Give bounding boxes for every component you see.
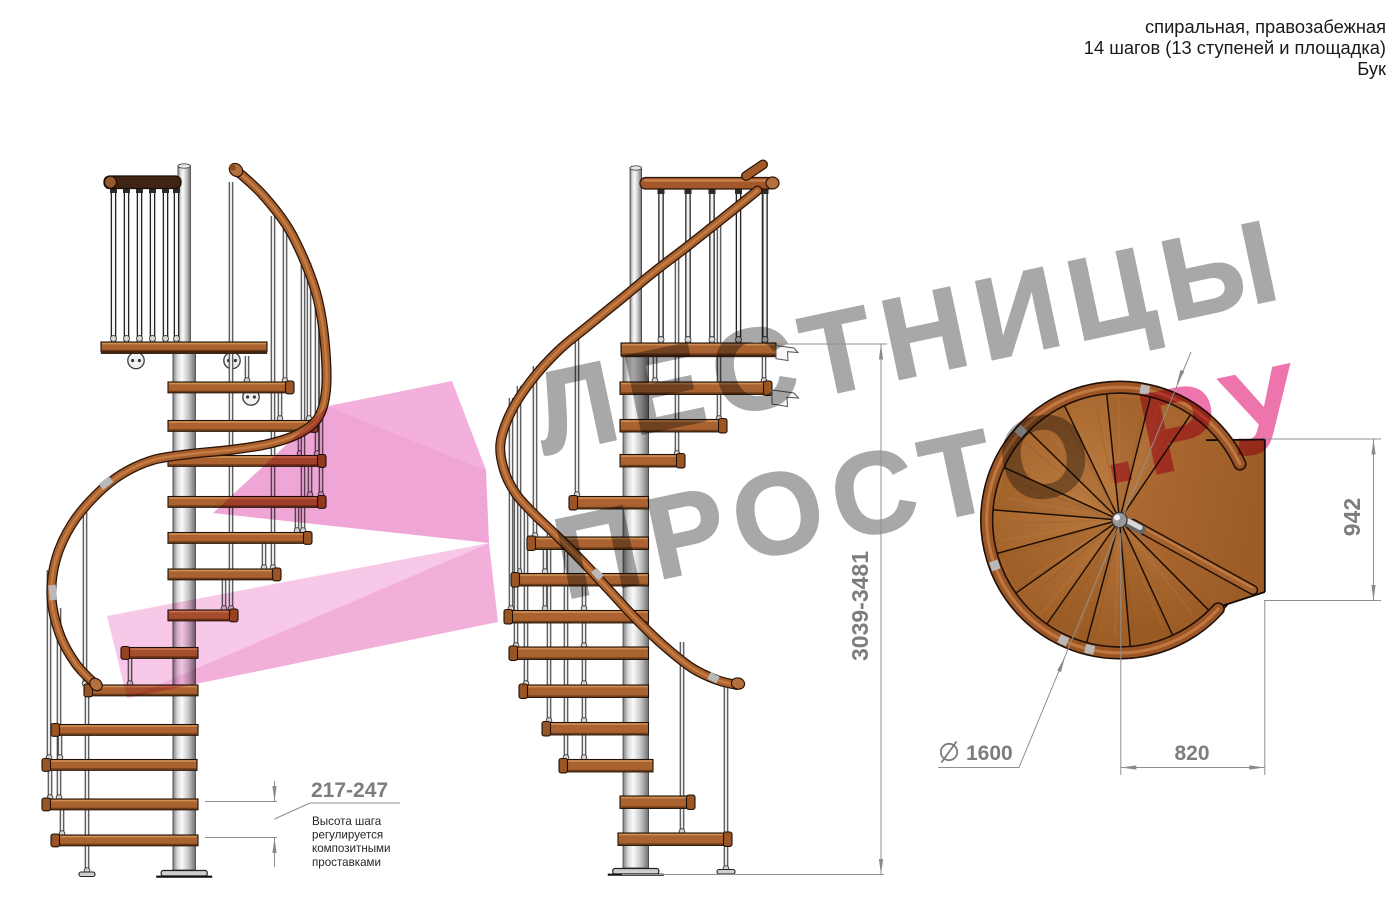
svg-text:3039-3481: 3039-3481 [847,551,873,661]
svg-text:217-247: 217-247 [311,779,388,802]
svg-text:спиральная, правозабежная: спиральная, правозабежная [1145,16,1386,37]
svg-text:1600: 1600 [966,742,1013,765]
svg-text:Бук: Бук [1357,58,1387,79]
svg-text:Высота шагарегулируетсякомпози: Высота шагарегулируетсякомпозитнымипрост… [312,815,391,869]
svg-text:14 шагов (13 ступеней и площад: 14 шагов (13 ступеней и площадка) [1084,37,1386,58]
svg-text:942: 942 [1339,498,1365,536]
svg-text:820: 820 [1174,742,1209,765]
